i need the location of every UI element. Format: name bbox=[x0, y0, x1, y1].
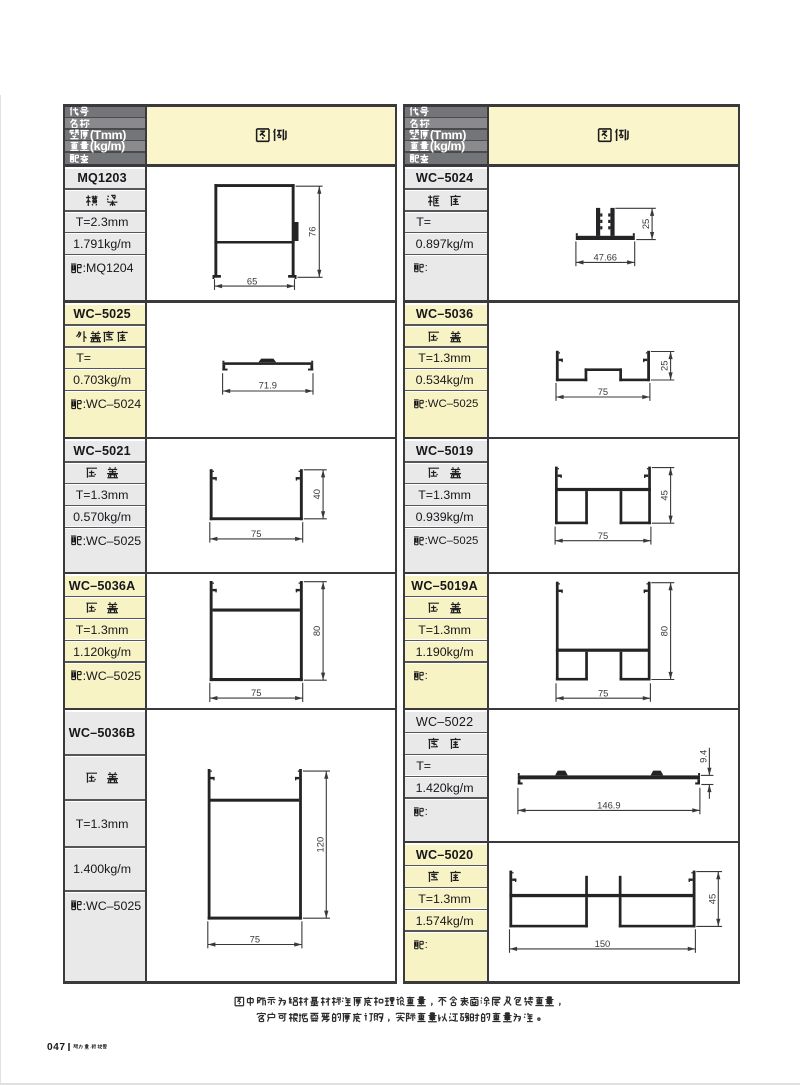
svg-text:75: 75 bbox=[598, 386, 608, 397]
svg-text:40: 40 bbox=[311, 489, 322, 499]
svg-text:65: 65 bbox=[247, 275, 257, 286]
svg-text:80: 80 bbox=[659, 626, 670, 636]
svg-text:25: 25 bbox=[640, 218, 651, 228]
svg-text:75: 75 bbox=[250, 934, 260, 945]
svg-text:71.9: 71.9 bbox=[259, 379, 277, 390]
svg-text:146.9: 146.9 bbox=[597, 800, 620, 811]
svg-text:76: 76 bbox=[306, 226, 317, 236]
svg-text:9.4: 9.4 bbox=[698, 750, 709, 763]
svg-text:75: 75 bbox=[251, 528, 261, 539]
svg-text:25: 25 bbox=[659, 360, 670, 370]
svg-text:75: 75 bbox=[251, 687, 261, 698]
svg-text:45: 45 bbox=[659, 491, 670, 501]
svg-text:150: 150 bbox=[595, 938, 611, 949]
svg-text:75: 75 bbox=[598, 687, 608, 698]
svg-text:47.66: 47.66 bbox=[594, 251, 617, 262]
svg-text:75: 75 bbox=[598, 530, 608, 541]
svg-text:120: 120 bbox=[314, 837, 325, 853]
svg-text:80: 80 bbox=[311, 626, 322, 636]
svg-text:45: 45 bbox=[706, 894, 717, 904]
